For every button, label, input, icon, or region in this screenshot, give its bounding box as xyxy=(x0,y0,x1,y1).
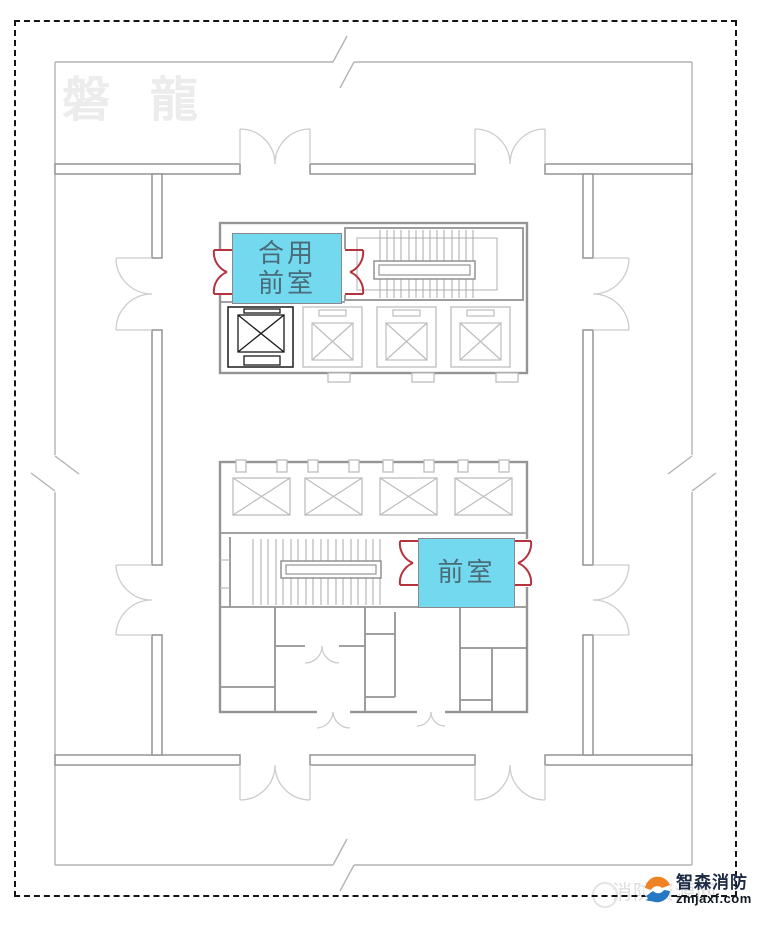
brand-logo-icon xyxy=(641,874,673,906)
room-label: 合用 xyxy=(258,239,316,268)
double-door-icon xyxy=(475,129,545,164)
service-rooms xyxy=(220,607,527,728)
corridor-doors xyxy=(116,129,629,800)
brand-name: 智森消防 xyxy=(676,874,752,892)
floor-plan-drawing xyxy=(0,0,760,929)
elevator-shaft xyxy=(380,478,437,515)
elevator-shaft xyxy=(303,307,362,367)
double-door-icon xyxy=(593,565,629,635)
room-label: 前室 xyxy=(437,558,495,587)
double-door-icon xyxy=(475,765,545,800)
fire-door-icon xyxy=(345,250,363,294)
brand-logo: 智森消防 zmjaxf.com xyxy=(641,874,752,906)
double-door-icon xyxy=(116,565,152,635)
corridor-walls xyxy=(55,164,692,765)
floor-plan-canvas: 磐 龍 消防资源网 xyxy=(0,0,760,929)
room-shared-front-lobby: 合用 前室 xyxy=(232,233,342,304)
double-door-icon xyxy=(240,765,310,800)
stair-bottom xyxy=(220,537,381,607)
room-label: 前室 xyxy=(258,269,316,298)
room-front-lobby: 前室 xyxy=(418,538,515,608)
double-door-icon xyxy=(305,646,339,663)
brand-website: zmjaxf.com xyxy=(676,892,752,906)
elevator-shaft xyxy=(377,307,436,367)
elevator-shaft xyxy=(305,478,362,515)
double-door-icon xyxy=(317,712,445,728)
double-door-icon xyxy=(240,129,310,164)
stair-top xyxy=(345,228,523,300)
fire-door-icon xyxy=(400,541,418,585)
double-door-icon xyxy=(593,258,629,330)
elevator-shaft xyxy=(455,478,512,515)
double-door-icon xyxy=(116,258,152,330)
elevator-shaft xyxy=(233,478,290,515)
firefighter-elevator xyxy=(228,307,293,367)
elevator-shaft xyxy=(451,307,510,367)
